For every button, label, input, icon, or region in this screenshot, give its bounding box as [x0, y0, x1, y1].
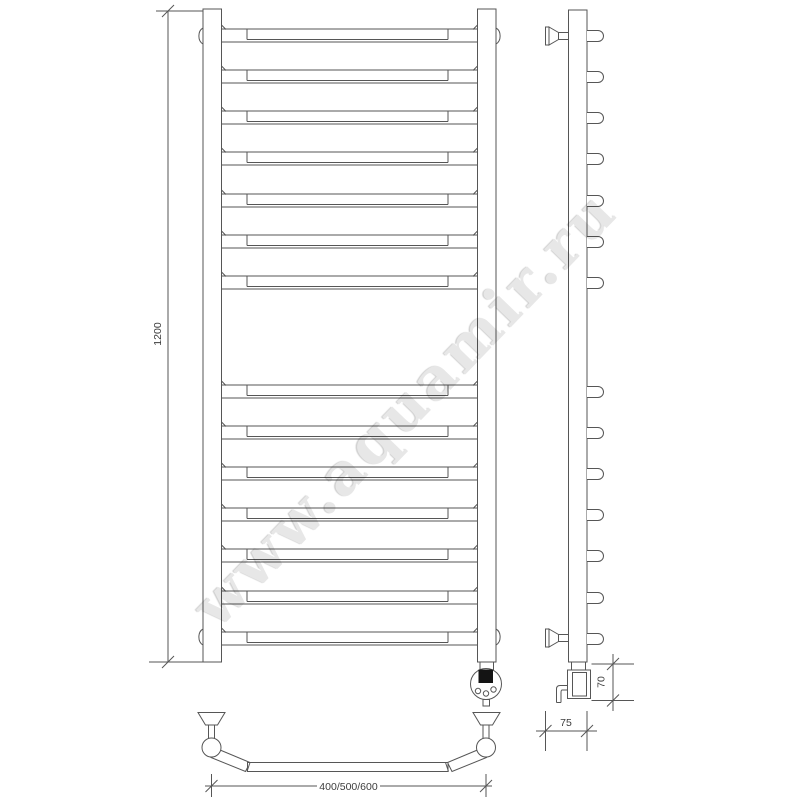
side-rung-stub	[587, 387, 604, 398]
rung-tube	[222, 591, 478, 604]
rung-tube	[222, 632, 478, 645]
side-post	[569, 10, 588, 662]
rung-tube	[222, 29, 478, 42]
side-rung-stub	[587, 428, 604, 439]
side-rung-stub	[587, 31, 604, 42]
right-post-bottom-union	[496, 629, 500, 645]
side-bottom-bracket-cone	[549, 629, 559, 647]
side-rung-stub	[587, 634, 604, 645]
dimension-width: 400/500/600	[205, 774, 492, 797]
side-rung-stub	[587, 593, 604, 604]
power-cable-inner	[561, 690, 568, 703]
side-rung-stub	[587, 510, 604, 521]
left-post-bottom-union	[199, 629, 203, 645]
rung-tube	[222, 235, 478, 248]
bottom-left-bracket-stem	[209, 725, 215, 739]
side-heater-neck	[572, 662, 586, 670]
towel-rail-technical-drawing: 1200 400/500/600 75 70	[0, 0, 800, 800]
bottom-view	[198, 713, 500, 772]
rung-tube	[222, 508, 478, 521]
front-right-post	[478, 9, 497, 662]
dimension-depth-label: 75	[560, 717, 572, 729]
thermostat-head	[471, 662, 502, 706]
side-top-bracket-stem	[559, 33, 569, 40]
bottom-left-bracket-cup	[198, 713, 225, 726]
side-top-bracket-cone	[549, 27, 559, 45]
side-rung-stub	[587, 113, 604, 124]
bottom-left-bracket-ball	[202, 738, 221, 757]
front-view	[199, 9, 502, 706]
side-heating-unit	[557, 662, 591, 703]
side-rung-stub	[587, 237, 604, 248]
side-rung-stub	[587, 196, 604, 207]
thermostat-display	[479, 670, 494, 684]
side-bottom-bracket-plate	[546, 629, 550, 647]
rung-tube	[222, 194, 478, 207]
front-left-post	[203, 9, 222, 662]
rung-tube	[222, 385, 478, 398]
dimension-heater-label: 70	[596, 676, 608, 688]
dimension-heater-height: 70	[592, 654, 635, 711]
side-bottom-bracket-stem	[559, 635, 569, 642]
dimension-height-label: 1200	[152, 322, 164, 346]
dimension-depth: 75	[536, 711, 597, 751]
thermostat-pin	[483, 700, 490, 707]
bottom-collector-tube	[248, 763, 449, 772]
power-cable-outer	[557, 686, 568, 703]
side-rung-stub	[587, 72, 604, 83]
rung-tube	[222, 152, 478, 165]
side-rung-stub	[587, 154, 604, 165]
front-rungs	[222, 25, 478, 645]
side-bottom-bracket	[546, 629, 569, 647]
side-top-bracket-plate	[546, 27, 550, 45]
rung-tube	[222, 467, 478, 480]
bottom-right-bracket-cup	[473, 713, 500, 726]
rung-tube	[222, 70, 478, 83]
side-rung-stub	[587, 469, 604, 480]
dimension-width-label: 400/500/600	[319, 781, 378, 793]
dimension-height: 1200	[149, 5, 203, 668]
right-post-top-union	[496, 28, 500, 44]
drawing-svg: 1200 400/500/600 75 70	[0, 0, 800, 800]
bottom-right-bracket-stem	[483, 725, 489, 739]
rung-tube	[222, 276, 478, 289]
side-rung-stubs	[587, 31, 604, 645]
rung-tube	[222, 426, 478, 439]
side-rung-stub	[587, 551, 604, 562]
left-post-top-union	[199, 28, 203, 44]
bottom-right-bracket-ball	[477, 738, 496, 757]
side-top-bracket	[546, 27, 569, 45]
side-view	[546, 10, 604, 703]
side-rung-stub	[587, 278, 604, 289]
rung-tube	[222, 549, 478, 562]
side-heater-core	[573, 673, 587, 697]
rung-tube	[222, 111, 478, 124]
